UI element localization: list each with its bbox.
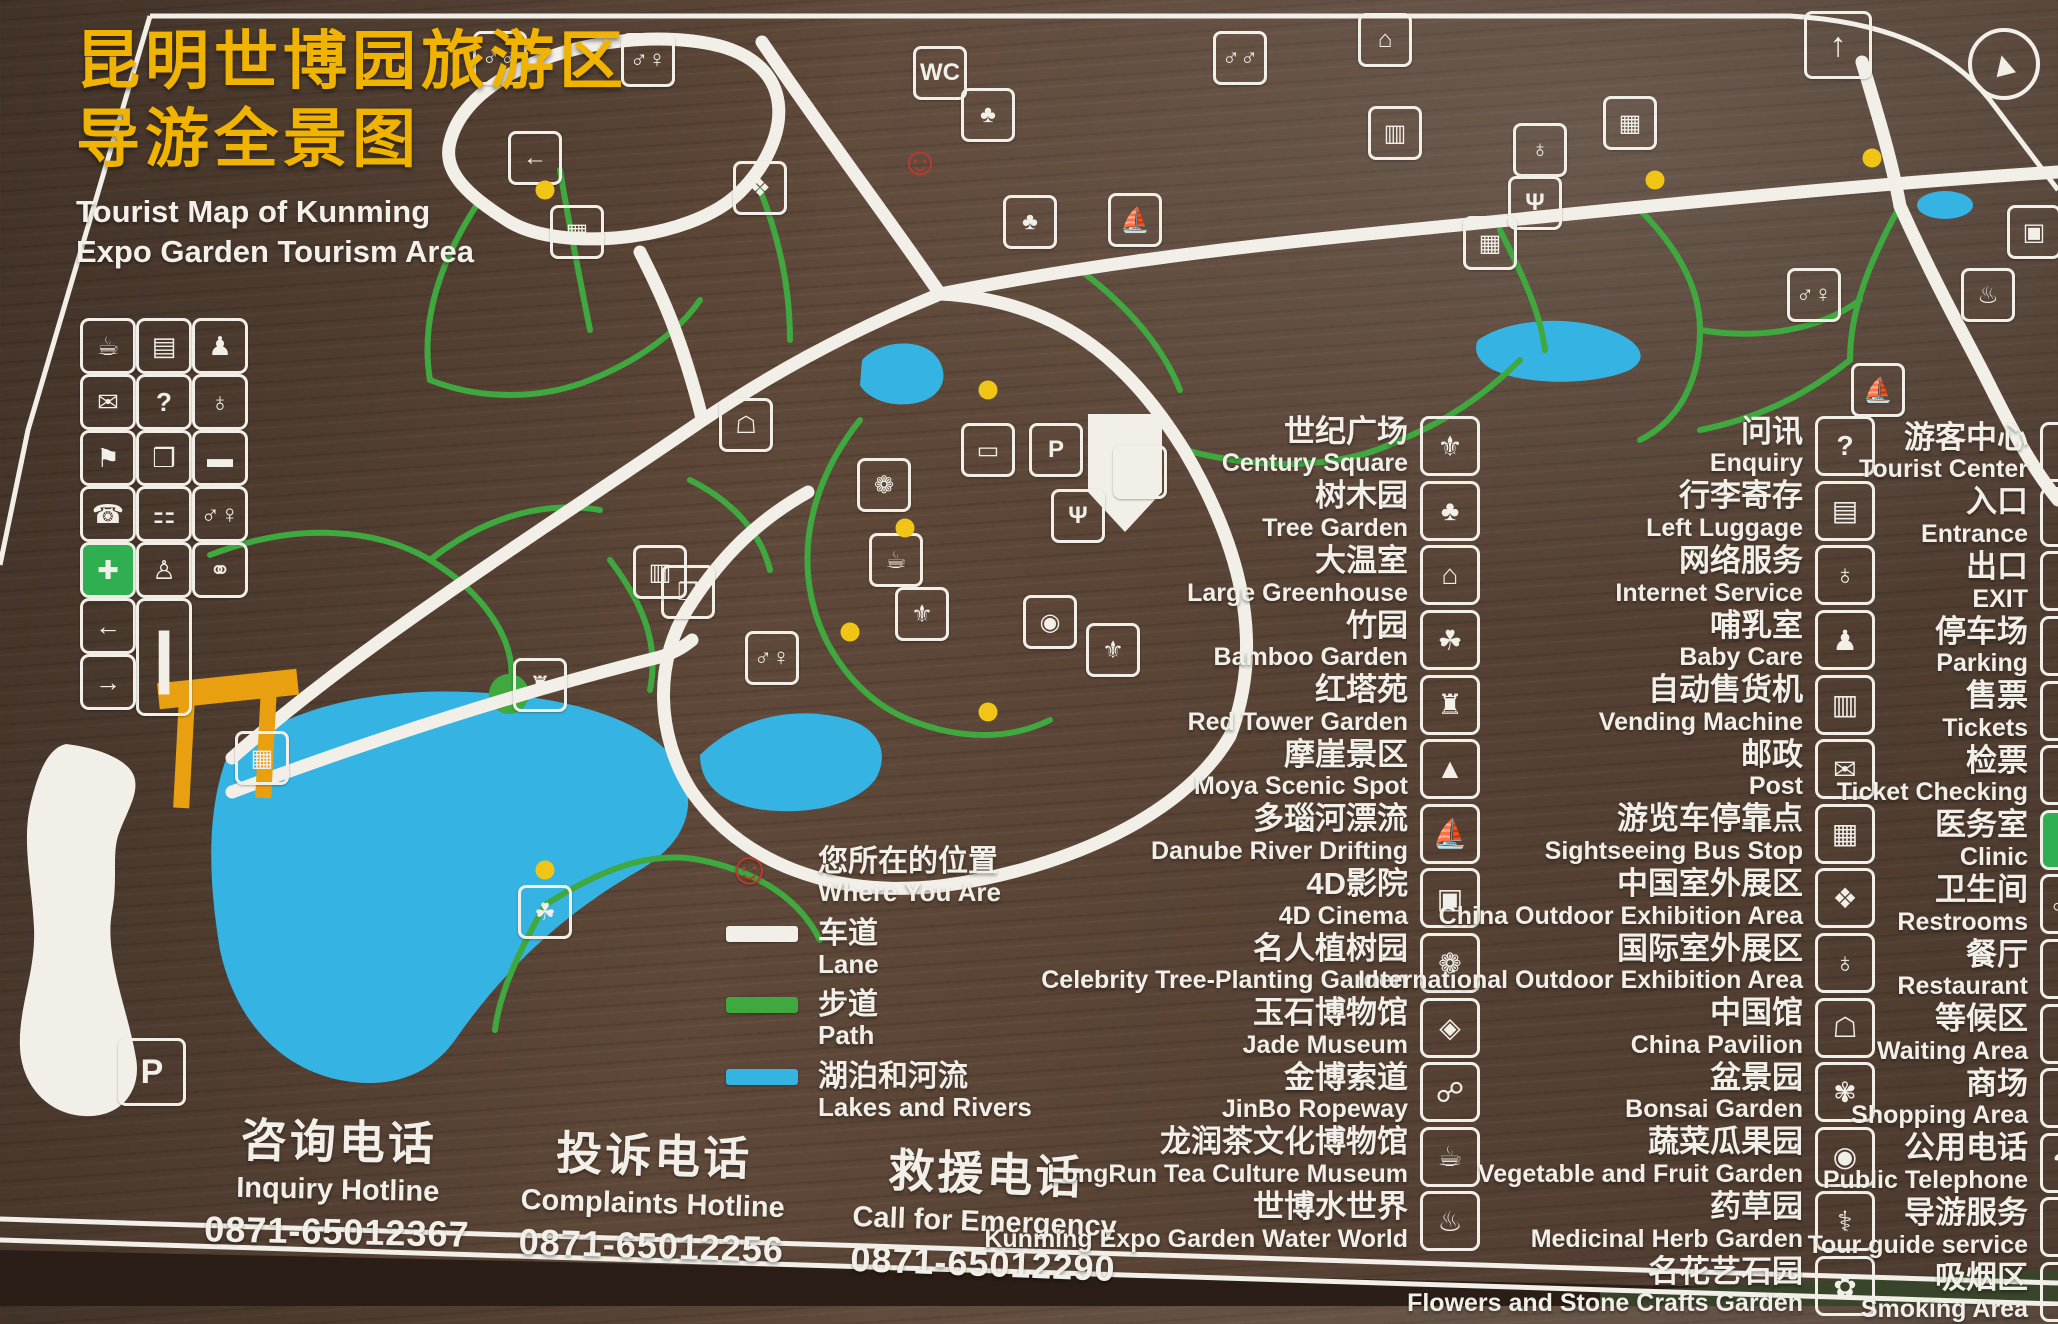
bus-map-icon: ▦ bbox=[1463, 216, 1517, 270]
restrooms-icon: ♂♀ bbox=[2040, 874, 2058, 934]
info-board-icon: ❙ bbox=[136, 598, 192, 716]
facility-row-tickets: 售票Tickets▱ bbox=[1700, 678, 2058, 743]
facility-row-public-telephone: 公用电话Public Telephone☎ bbox=[1700, 1131, 2058, 1196]
facility-label-zh: 售票 bbox=[1942, 680, 2028, 713]
facility-label: 医务室Clinic bbox=[1935, 809, 2028, 870]
facility-label: 导游服务Tour guide service bbox=[1808, 1197, 2028, 1258]
facility-label-zh: 卫生间 bbox=[1897, 874, 2028, 907]
facility-label-en: Parking bbox=[1935, 650, 2028, 676]
facility-label-zh: 餐厅 bbox=[1897, 939, 2028, 972]
facility-label: 商场Shopping Area bbox=[1851, 1068, 2028, 1129]
restrooms-icon: ♂♀ bbox=[192, 486, 248, 542]
mountain-lodge-map-icon: ⌂ bbox=[1358, 13, 1412, 67]
inquiry-hotline: 咨询电话 Inquiry Hotline 0871-65012367 bbox=[164, 1102, 511, 1256]
junction-dot bbox=[1646, 171, 1665, 190]
tour-guide-service-icon: ⚑ bbox=[2040, 1197, 2058, 1257]
restrooms-map-icon: ♂♀ bbox=[1787, 268, 1841, 322]
facility-label-en: Clinic bbox=[1935, 844, 2028, 870]
facility-label-en: Entrance bbox=[1921, 521, 2028, 547]
facility-label-zh: 停车场 bbox=[1935, 616, 2028, 649]
toilet-map-icon: WC bbox=[913, 46, 967, 100]
facility-label: 出口EXIT bbox=[1966, 551, 2028, 612]
facility-row-shopping-area: 商场Shopping Area❒ bbox=[1700, 1066, 2058, 1131]
facility-label-en: Tickets bbox=[1942, 715, 2028, 741]
facility-label-zh: 吸烟区 bbox=[1861, 1262, 2028, 1295]
facility-label-en: Smoking Area bbox=[1861, 1296, 2028, 1322]
facility-label-en: Ticket Checking bbox=[1837, 779, 2028, 805]
restaurant-icon: Ψ bbox=[2040, 939, 2058, 999]
compass: ▲ bbox=[1968, 28, 2040, 100]
title-zh-line1: 昆明世博园旅游区 bbox=[76, 22, 628, 100]
title-en-line1: Tourist Map of Kunming bbox=[76, 192, 628, 232]
junction-dot bbox=[1863, 149, 1882, 168]
facility-row-entrance: 入口Entrance→ bbox=[1700, 485, 2058, 550]
shopping-icon: ❒ bbox=[136, 430, 192, 486]
china-pavilion-map-icon: ☖ bbox=[719, 398, 773, 452]
globe-map-icon: ♁ bbox=[1513, 123, 1567, 177]
baby-care-icon: ♟ bbox=[192, 318, 248, 374]
facility-row-ticket-checking: 检票Ticket Checking✂ bbox=[1700, 743, 2058, 808]
facility-label-en: Restrooms bbox=[1897, 909, 2028, 935]
enquiry-icon: ? bbox=[136, 374, 192, 430]
facility-label: 卫生间Restrooms bbox=[1897, 874, 2028, 935]
bus-map-icon: ▦ bbox=[235, 731, 289, 785]
facility-row-restrooms: 卫生间Restrooms♂♀ bbox=[1700, 872, 2058, 937]
facility-column-amenities: 游客中心Tourist Centeri入口Entrance→出口EXIT←停车场… bbox=[1700, 420, 2058, 1324]
facility-label: 吸烟区Smoking Area bbox=[1861, 1262, 2028, 1323]
junction-dot bbox=[536, 861, 555, 880]
facility-label-en: Restaurant bbox=[1897, 973, 2028, 999]
entrance-icon: → bbox=[2040, 487, 2058, 547]
north-arrow-icon: ▲ bbox=[1983, 41, 2025, 87]
clinic-icon: ✚ bbox=[2040, 810, 2058, 870]
parking-icon: P bbox=[2040, 616, 2058, 676]
facility-label-en: Public Telephone bbox=[1823, 1167, 2028, 1193]
left-luggage-icon: ▤ bbox=[136, 318, 192, 374]
inquiry-hotline-number: 0871-65012367 bbox=[164, 1207, 509, 1256]
facility-label: 售票Tickets bbox=[1942, 680, 2028, 741]
meeting-point-icon: ⚭ bbox=[192, 542, 248, 598]
tourist-center-icon: i bbox=[2040, 422, 2058, 482]
public-telephone-icon: ☎ bbox=[2040, 1133, 2058, 1193]
facility-label-zh: 公用电话 bbox=[1823, 1132, 2028, 1165]
facility-label-en: Tour guide service bbox=[1808, 1232, 2028, 1258]
map-sign-board: 昆明世博园旅游区 导游全景图 Tourist Map of Kunming Ex… bbox=[0, 0, 2058, 1306]
facility-label-zh: 等候区 bbox=[1877, 1003, 2028, 1036]
facility-label: 等候区Waiting Area bbox=[1877, 1003, 2028, 1064]
waiting-area-icon: ⌛ bbox=[2040, 1004, 2058, 1064]
facility-label: 游客中心Tourist Center bbox=[1859, 422, 2028, 483]
inquiry-hotline-en: Inquiry Hotline bbox=[165, 1170, 510, 1210]
vending-map-icon: ▥ bbox=[633, 545, 687, 599]
facility-row-exit: 出口EXIT← bbox=[1700, 549, 2058, 614]
facility-label-zh: 医务室 bbox=[1935, 809, 2028, 842]
tour-guide-icon: ⚑ bbox=[80, 430, 136, 486]
service-counter-icon: ⚏ bbox=[136, 486, 192, 542]
facility-label: 公用电话Public Telephone bbox=[1823, 1132, 2028, 1193]
vending-map-icon: ▥ bbox=[1368, 106, 1422, 160]
shopping-area-icon: ❒ bbox=[2040, 1068, 2058, 1128]
tree-map-icon: ♣ bbox=[961, 88, 1015, 142]
mother-baby-room-icon: ♙ bbox=[136, 542, 192, 598]
tickets-icon: ▱ bbox=[2040, 681, 2058, 741]
first-aid-icon: ✚ bbox=[80, 542, 136, 598]
facility-label-en: Shopping Area bbox=[1851, 1102, 2028, 1128]
facility-label: 入口Entrance bbox=[1921, 486, 2028, 547]
facility-label-zh: 出口 bbox=[1966, 551, 2028, 584]
inquiry-hotline-zh: 咨询电话 bbox=[166, 1102, 511, 1175]
bus-map-icon: ▦ bbox=[1603, 96, 1657, 150]
facility-label: 餐厅Restaurant bbox=[1897, 939, 2028, 1000]
where-you-are-icon: ☺ bbox=[726, 845, 773, 891]
restrooms-map-icon: ♂♀ bbox=[621, 33, 675, 87]
exit-icon: ← bbox=[2040, 551, 2058, 611]
facility-row-restaurant: 餐厅RestaurantΨ bbox=[1700, 937, 2058, 1002]
boat-map-icon: ⛵ bbox=[1851, 363, 1905, 417]
facility-row-waiting-area: 等候区Waiting Area⌛ bbox=[1700, 1001, 2058, 1066]
hotspring-map-icon: ♨ bbox=[1961, 268, 2015, 322]
exit-icon: ← bbox=[80, 598, 136, 654]
tree-map-icon: ♣ bbox=[1003, 195, 1057, 249]
bamboo-map-icon: ☘ bbox=[518, 885, 572, 939]
ticket-checking-icon: ✂ bbox=[2040, 745, 2058, 805]
internet-service-icon: ♁ bbox=[192, 374, 248, 430]
china-map-map-icon: ❖ bbox=[733, 161, 787, 215]
title-en-line2: Expo Garden Tourism Area bbox=[76, 232, 628, 272]
screen-map-icon: ▣ bbox=[2007, 205, 2058, 259]
drinking-water-icon: ☕ bbox=[80, 318, 136, 374]
facility-row-tourist-center: 游客中心Tourist Centeri bbox=[1700, 420, 2058, 485]
facility-label-zh: 商场 bbox=[1851, 1068, 2028, 1101]
facility-label-en: EXIT bbox=[1966, 586, 2028, 612]
entrance-icon: → bbox=[80, 654, 136, 710]
facility-row-smoking-area: 吸烟区Smoking Area∿ bbox=[1700, 1260, 2058, 1324]
facility-row-parking: 停车场ParkingP bbox=[1700, 614, 2058, 679]
title-block: 昆明世博园旅游区 导游全景图 Tourist Map of Kunming Ex… bbox=[76, 22, 628, 272]
post-icon: ✉ bbox=[80, 374, 136, 430]
boat-map-icon: ⛵ bbox=[1108, 193, 1162, 247]
facility-label-en: Tourist Center bbox=[1859, 456, 2028, 482]
facility-label-zh: 导游服务 bbox=[1808, 1197, 2028, 1230]
facility-label: 停车场Parking bbox=[1935, 616, 2028, 677]
you-are-here-marker: ☺ bbox=[900, 142, 941, 182]
parking-map-icon: P bbox=[118, 1038, 186, 1106]
junction-dot bbox=[979, 381, 998, 400]
facility-label-zh: 入口 bbox=[1921, 486, 2028, 519]
telephone-icon: ☎ bbox=[80, 486, 136, 542]
left-icon-grid: ☕▤♟✉?♁⚑❒▬☎⚏♂♀✚♙⚭←❙→ bbox=[80, 318, 242, 704]
exit-up-map-icon: ↑ bbox=[1804, 11, 1872, 79]
title-zh-line2: 导游全景图 bbox=[76, 100, 628, 178]
pagoda-map-icon: ♜ bbox=[513, 658, 567, 712]
people-map-icon: ♂♂ bbox=[1213, 31, 1267, 85]
facility-row-clinic: 医务室Clinic✚ bbox=[1700, 808, 2058, 873]
facility-label-en: Waiting Area bbox=[1877, 1038, 2028, 1064]
facility-label-zh: 游客中心 bbox=[1859, 422, 2028, 455]
facility-row-tour-guide-service: 导游服务Tour guide service⚑ bbox=[1700, 1195, 2058, 1260]
smoking-area-icon: ∿ bbox=[2040, 1262, 2058, 1322]
luggage-cart-icon: ▬ bbox=[192, 430, 248, 486]
facility-label-zh: 检票 bbox=[1837, 745, 2028, 778]
facility-label: 检票Ticket Checking bbox=[1837, 745, 2028, 806]
